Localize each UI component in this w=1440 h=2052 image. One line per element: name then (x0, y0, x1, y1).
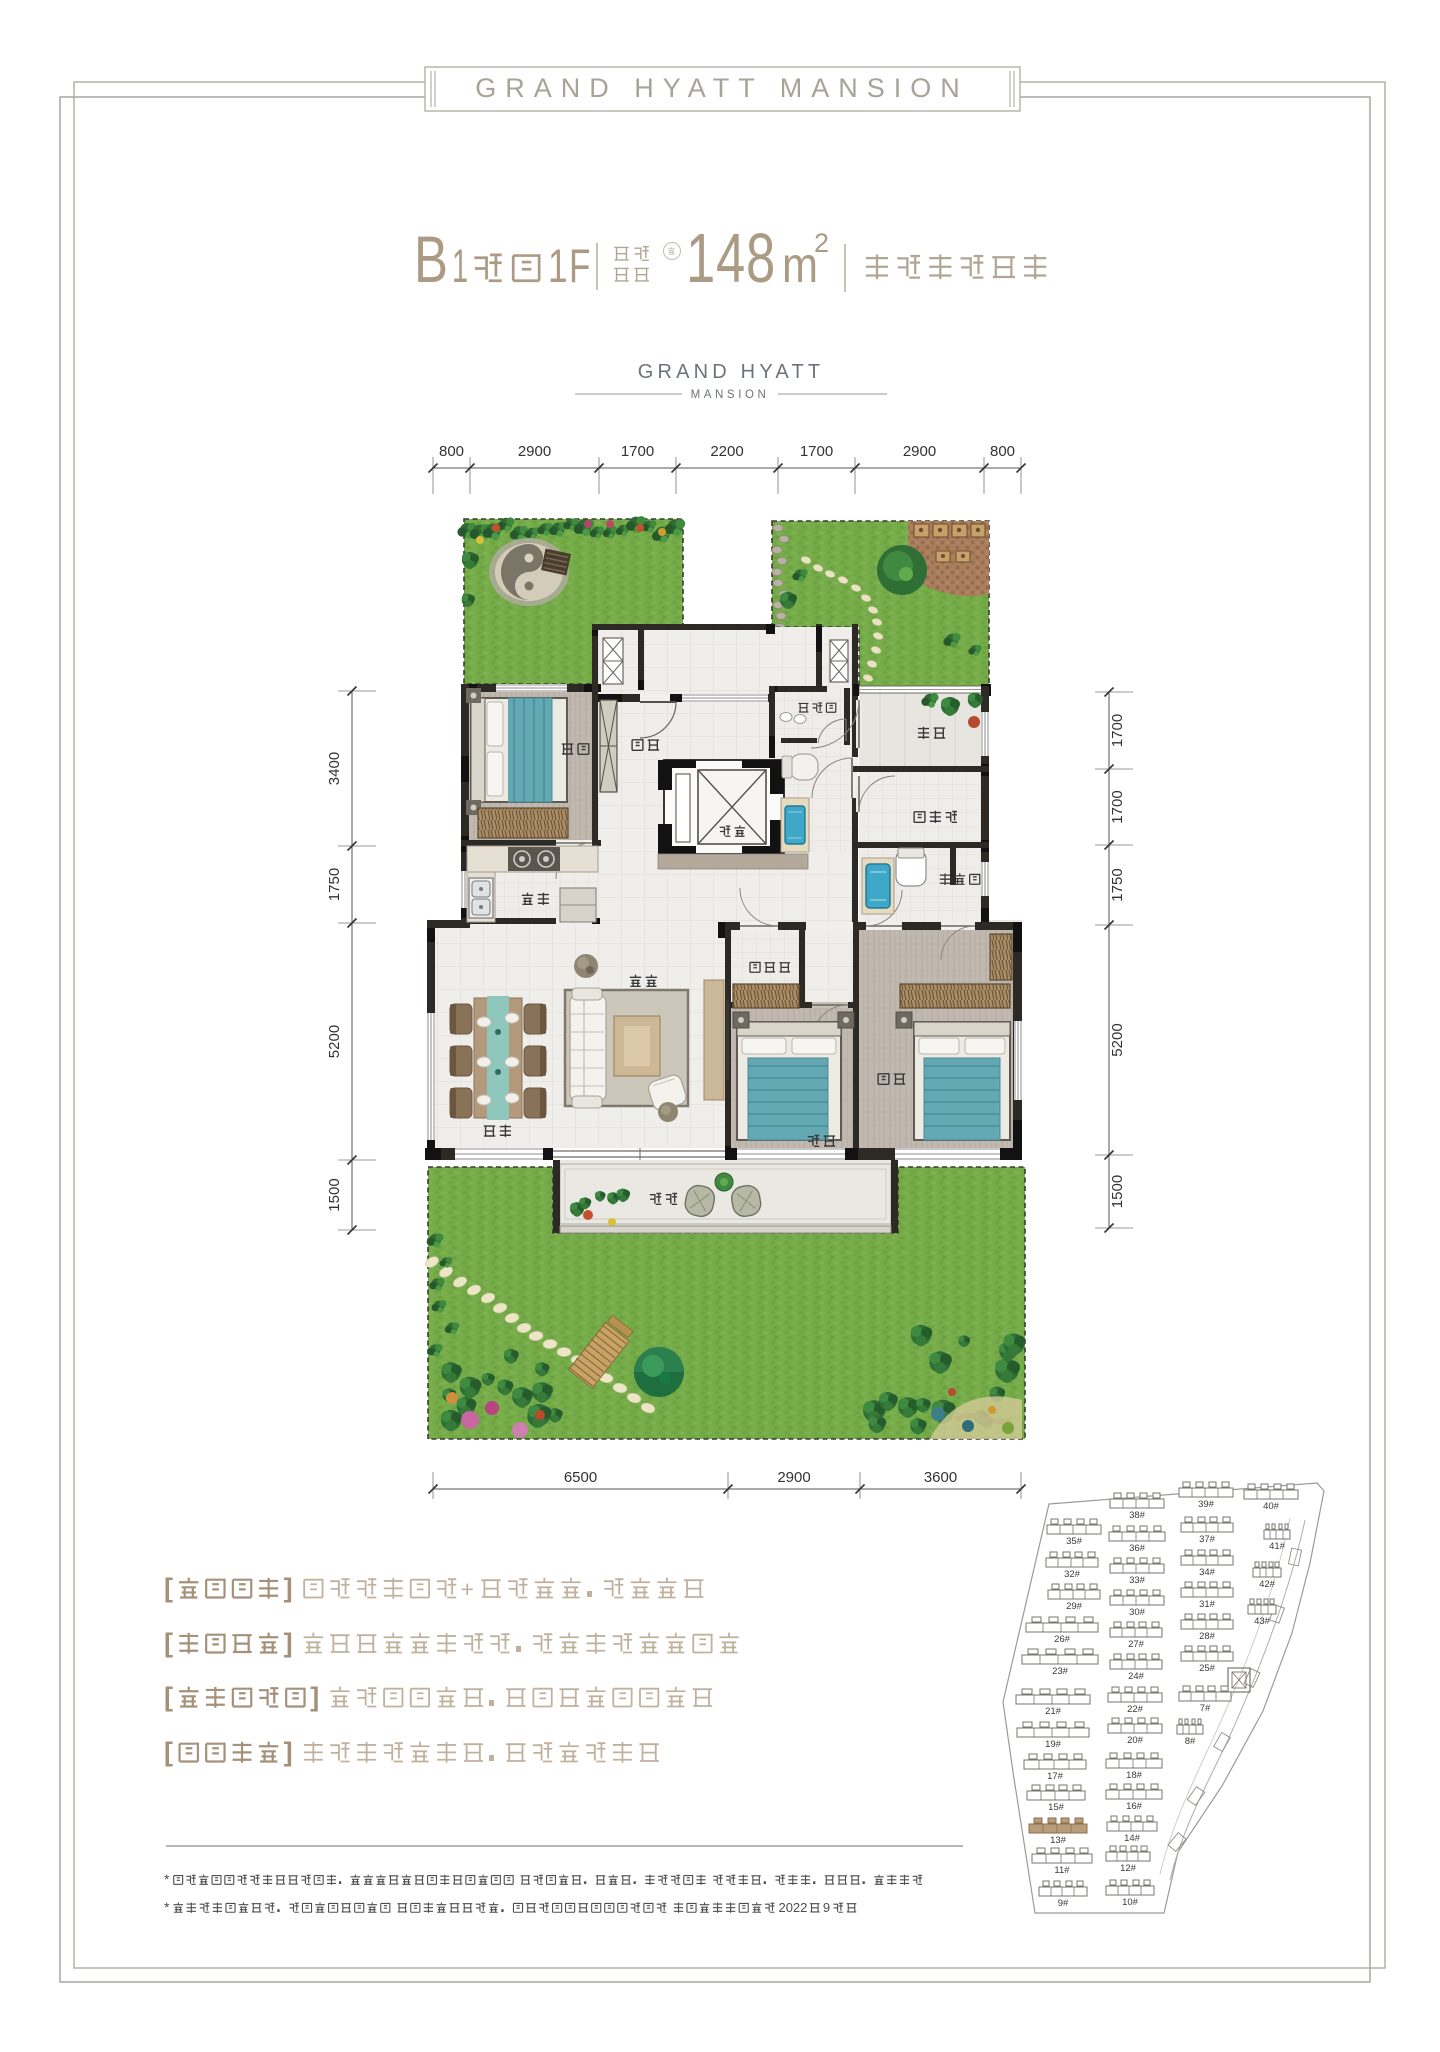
svg-text:]: ] (284, 1628, 293, 1658)
svg-text:5200: 5200 (326, 1025, 343, 1058)
svg-text:41#: 41# (1269, 1541, 1286, 1552)
svg-text:29#: 29# (1066, 1601, 1083, 1612)
svg-text:7#: 7# (1200, 1703, 1211, 1714)
svg-text:800: 800 (990, 443, 1015, 460)
svg-text:19#: 19# (1045, 1739, 1062, 1750)
svg-text:31#: 31# (1199, 1599, 1216, 1610)
svg-text:+: + (461, 1576, 474, 1602)
svg-text:148: 148 (686, 219, 776, 297)
svg-text:1: 1 (452, 239, 468, 292)
svg-text:25#: 25# (1199, 1663, 1216, 1674)
svg-text:11#: 11# (1054, 1865, 1070, 1876)
svg-text:1750: 1750 (1109, 868, 1126, 901)
svg-text:[: [ (164, 1737, 173, 1767)
svg-text:2022: 2022 (778, 1900, 807, 1915)
svg-text:1700: 1700 (800, 443, 833, 460)
svg-text:2900: 2900 (777, 1469, 810, 1486)
svg-text:MANSION: MANSION (691, 389, 770, 401)
svg-text:5200: 5200 (1109, 1023, 1126, 1056)
svg-text:40#: 40# (1263, 1501, 1280, 1512)
svg-text:GRAND HYATT MANSION: GRAND HYATT MANSION (475, 73, 969, 103)
svg-text:24#: 24# (1128, 1671, 1145, 1682)
svg-text:13#: 13# (1050, 1835, 1067, 1846)
svg-text:27#: 27# (1128, 1639, 1145, 1650)
svg-text:9: 9 (823, 1900, 830, 1915)
svg-text:8#: 8# (1185, 1736, 1196, 1747)
svg-text:18#: 18# (1126, 1770, 1143, 1781)
svg-text:35#: 35# (1066, 1536, 1083, 1547)
svg-text:GRAND HYATT: GRAND HYATT (638, 361, 825, 383)
svg-text:m: m (782, 237, 818, 293)
svg-text:2900: 2900 (518, 443, 551, 460)
svg-text:9#: 9# (1058, 1898, 1069, 1909)
svg-text:B: B (414, 222, 448, 296)
svg-text:39#: 39# (1198, 1499, 1215, 1510)
svg-text:14#: 14# (1124, 1833, 1141, 1844)
svg-text:2200: 2200 (710, 443, 743, 460)
svg-text:17#: 17# (1047, 1771, 1064, 1782)
svg-text:20#: 20# (1127, 1735, 1144, 1746)
svg-text:1500: 1500 (1109, 1175, 1126, 1208)
svg-text:36#: 36# (1129, 1543, 1146, 1554)
svg-text:6500: 6500 (564, 1469, 597, 1486)
svg-text:16#: 16# (1126, 1801, 1143, 1812)
svg-text:43#: 43# (1254, 1616, 1271, 1627)
svg-text:26#: 26# (1054, 1634, 1071, 1645)
svg-text:1F: 1F (548, 239, 592, 292)
svg-text:800: 800 (439, 443, 464, 460)
svg-text:2900: 2900 (903, 443, 936, 460)
svg-text:23#: 23# (1052, 1666, 1069, 1677)
svg-text:[: [ (164, 1628, 173, 1658)
svg-text:38#: 38# (1129, 1510, 1146, 1521)
svg-text:1700: 1700 (621, 443, 654, 460)
svg-text:37#: 37# (1199, 1534, 1216, 1545)
svg-text:]: ] (284, 1737, 293, 1767)
svg-text:*: * (164, 1899, 170, 1915)
svg-text:1700: 1700 (1109, 714, 1126, 747)
svg-text:2: 2 (814, 228, 829, 258)
svg-text:34#: 34# (1199, 1567, 1216, 1578)
svg-text:12#: 12# (1120, 1863, 1137, 1874)
svg-text:28#: 28# (1199, 1631, 1216, 1642)
svg-text:32#: 32# (1064, 1569, 1081, 1580)
svg-text:1750: 1750 (326, 868, 343, 901)
svg-text:[: [ (164, 1682, 173, 1712)
svg-text:1700: 1700 (1109, 790, 1126, 823)
svg-text:1500: 1500 (326, 1178, 343, 1211)
svg-text:15#: 15# (1048, 1802, 1065, 1813)
svg-text:[: [ (164, 1573, 173, 1603)
svg-text:]: ] (284, 1573, 293, 1603)
svg-text:22#: 22# (1127, 1704, 1144, 1715)
svg-text:3600: 3600 (924, 1469, 957, 1486)
svg-text:*: * (164, 1871, 170, 1887)
svg-text:10#: 10# (1122, 1897, 1139, 1908)
svg-text:21#: 21# (1045, 1706, 1062, 1717)
svg-text:3400: 3400 (326, 752, 343, 785)
svg-text:33#: 33# (1129, 1575, 1146, 1586)
svg-text:]: ] (310, 1682, 319, 1712)
svg-text:42#: 42# (1259, 1579, 1276, 1590)
svg-text:30#: 30# (1129, 1607, 1146, 1618)
